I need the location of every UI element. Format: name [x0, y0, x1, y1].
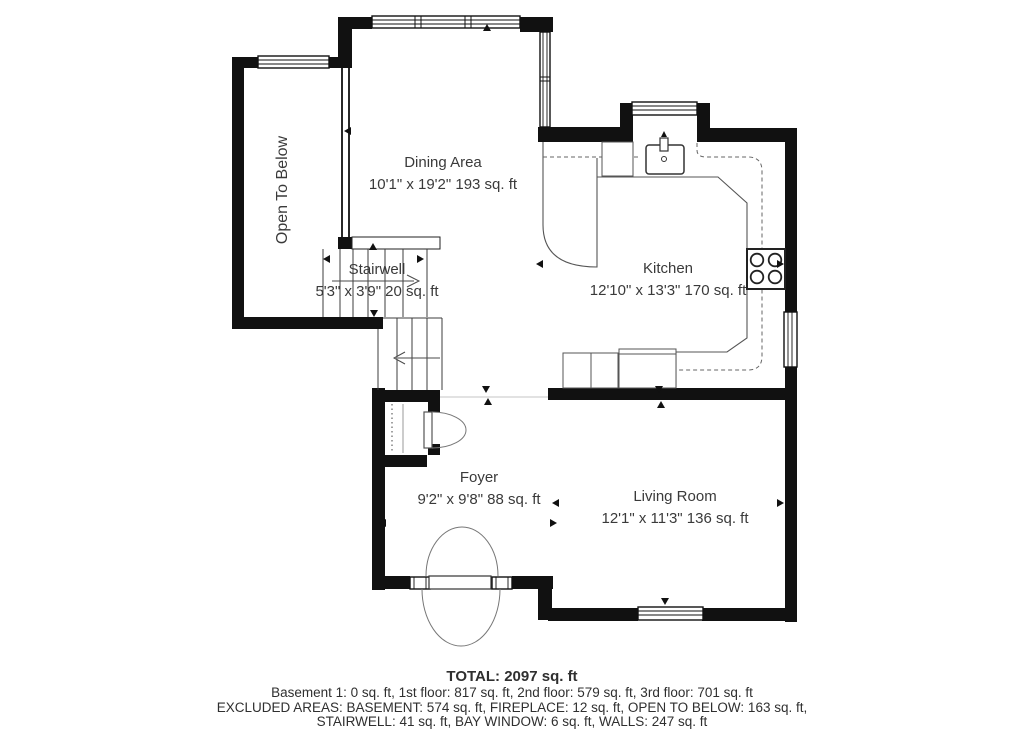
room-label-stairwell: Stairwell 5'3" x 3'9" 20 sq. ft	[315, 259, 438, 303]
closet-door-leaf	[424, 412, 432, 448]
stair-lower-run	[378, 318, 442, 390]
marker-down-stairwell	[370, 310, 378, 317]
front-door-arc-upper	[426, 527, 498, 576]
marker-up-faucet	[661, 131, 667, 137]
marker-left-railing	[344, 127, 351, 135]
front-door	[422, 527, 500, 646]
wall-right-upper	[785, 128, 797, 312]
wall-kitchen-top-left	[538, 127, 622, 142]
kitchen-counter-left-edge	[543, 142, 597, 267]
wall-bay-left	[620, 103, 633, 142]
room-dims: 12'10" x 13'3" 170 sq. ft	[590, 280, 746, 302]
room-name: Stairwell	[315, 259, 438, 281]
wall-closet-top	[378, 390, 440, 402]
wall-bay-right	[697, 103, 710, 142]
wall-dining-top-left	[338, 17, 372, 29]
window-front-sidelight-left	[410, 577, 430, 589]
window-open-below-top	[258, 56, 329, 68]
room-label-kitchen: Kitchen 12'10" x 13'3" 170 sq. ft	[590, 258, 746, 302]
room-dims: 12'1" x 11'3" 136 sq. ft	[601, 508, 748, 530]
kitchen-base-cabinet-2	[591, 353, 618, 388]
wall-living-bottom-right	[702, 608, 797, 621]
front-door-arc-lower	[422, 589, 500, 646]
open-below-railing	[342, 67, 349, 237]
marker-right-living	[777, 499, 784, 507]
kitchen-tall-cabinet	[602, 142, 633, 176]
wall-landing-post	[338, 237, 352, 249]
room-label-living: Living Room 12'1" x 11'3" 136 sq. ft	[601, 486, 748, 530]
room-dims: 9'2" x 9'8" 88 sq. ft	[417, 489, 540, 511]
marker-left-living	[552, 499, 559, 507]
window-dining-right	[540, 32, 550, 127]
stair-direction-arrow-down	[394, 352, 440, 364]
front-door-leaf	[429, 576, 491, 589]
floorplan-canvas	[0, 0, 1024, 738]
marker-left-kitchen	[536, 260, 543, 268]
kitchen-sink	[646, 138, 684, 174]
kitchen-stove	[747, 249, 785, 289]
window-front-sidelight-right	[492, 577, 512, 589]
wall-open-below-top-left	[232, 57, 258, 68]
wall-kitchen-top-right	[710, 128, 797, 142]
wall-open-below-bottom	[232, 317, 383, 329]
wall-living-bottom-left	[548, 608, 638, 621]
marker-down-living-bottom	[661, 598, 669, 605]
room-dims: 5'3" x 3'9" 20 sq. ft	[315, 281, 438, 303]
marker-right-foyer	[550, 519, 557, 527]
summary-excluded-1: EXCLUDED AREAS: BASEMENT: 574 sq. ft, FI…	[0, 701, 1024, 716]
summary-excluded-2: STAIRWELL: 41 sq. ft, BAY WINDOW: 6 sq. …	[0, 715, 1024, 730]
sink-faucet	[660, 138, 668, 151]
window-kitchen-bay	[632, 102, 697, 115]
room-name: Foyer	[417, 467, 540, 489]
summary-total: TOTAL: 2097 sq. ft	[0, 668, 1024, 686]
stair-landing	[352, 237, 440, 249]
summary-floors: Basement 1: 0 sq. ft, 1st floor: 817 sq.…	[0, 686, 1024, 701]
closet-door-swing-arc	[432, 412, 466, 448]
wall-foyer-bottom-right	[512, 576, 553, 589]
kitchen-dishwasher	[619, 349, 676, 388]
marker-up-foyer-boundary	[484, 398, 492, 405]
marker-up-kitchen-living	[657, 401, 665, 408]
wall-open-below-left	[232, 57, 244, 328]
wall-closet-jamb-top	[428, 402, 440, 412]
kitchen-base-cabinet-1	[563, 353, 591, 388]
window-dining-top	[372, 16, 520, 28]
wall-closet-bottom	[373, 455, 427, 467]
window-living-bottom	[638, 607, 703, 620]
plan-summary: TOTAL: 2097 sq. ft Basement 1: 0 sq. ft,…	[0, 668, 1024, 730]
room-label-foyer: Foyer 9'2" x 9'8" 88 sq. ft	[417, 467, 540, 511]
marker-down-foyer-boundary	[482, 386, 490, 393]
room-label-open-to-below: Open To Below	[274, 136, 292, 244]
wall-foyer-left	[372, 388, 385, 590]
wall-foyer-bottom-left	[373, 576, 410, 589]
room-name: Kitchen	[590, 258, 746, 280]
room-name: Dining Area	[369, 152, 517, 174]
window-kitchen-right	[784, 312, 797, 367]
wall-right-lower	[785, 367, 797, 622]
wall-dining-top-right-corner	[520, 17, 553, 32]
floorplan-page: Open To Below Dining Area 10'1" x 19'2" …	[0, 0, 1024, 738]
room-dims: 10'1" x 19'2" 193 sq. ft	[369, 174, 517, 196]
room-label-dining: Dining Area 10'1" x 19'2" 193 sq. ft	[369, 152, 517, 196]
walls	[232, 17, 797, 622]
wall-kitchen-living	[548, 388, 797, 400]
room-name: Living Room	[601, 486, 748, 508]
